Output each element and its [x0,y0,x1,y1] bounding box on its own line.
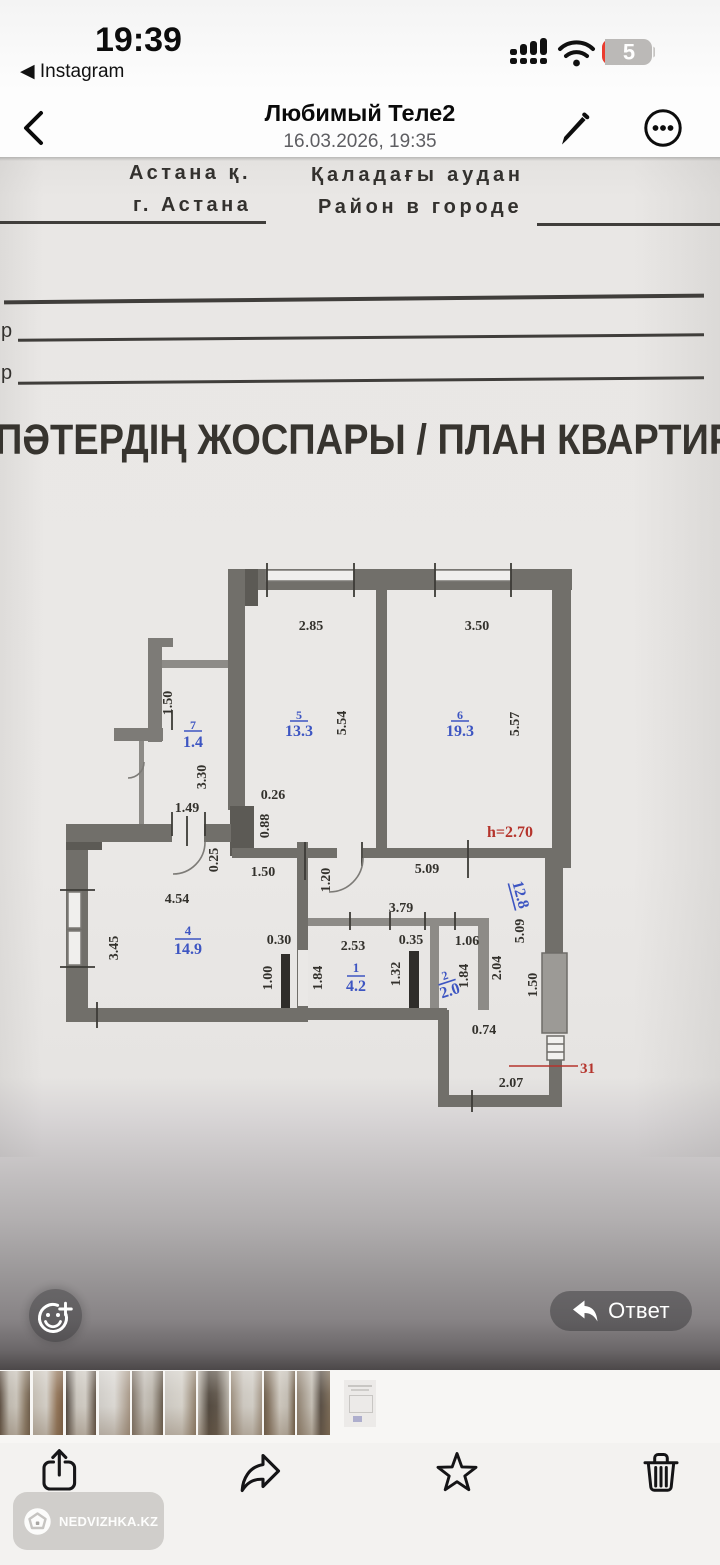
svg-text:2.04: 2.04 [490,956,505,981]
svg-text:14.9: 14.9 [174,941,202,958]
svg-text:2.07: 2.07 [499,1076,524,1091]
svg-text:h=2.70: h=2.70 [487,824,533,841]
svg-text:4: 4 [185,923,192,938]
svg-text:4.2: 4.2 [346,978,366,995]
svg-text:0.74: 0.74 [472,1023,497,1038]
svg-text:5.57: 5.57 [508,712,523,737]
svg-text:1.20: 1.20 [319,868,334,893]
svg-text:0.35: 0.35 [399,933,424,948]
svg-text:13.3: 13.3 [285,723,313,740]
svg-text:19.3: 19.3 [446,723,474,740]
svg-text:6: 6 [457,708,463,722]
svg-text:3.30: 3.30 [195,765,210,790]
svg-text:4.54: 4.54 [165,892,190,907]
svg-text:2.85: 2.85 [299,619,324,634]
svg-text:1.4: 1.4 [183,734,203,751]
svg-text:3.79: 3.79 [389,901,414,916]
svg-text:7: 7 [190,718,196,732]
svg-text:5.09: 5.09 [415,862,440,877]
svg-text:2.53: 2.53 [341,939,366,954]
svg-text:5.54: 5.54 [335,711,350,736]
svg-text:0.88: 0.88 [258,814,273,839]
svg-text:5: 5 [623,40,635,65]
svg-text:1.32: 1.32 [389,962,404,987]
svg-text:5: 5 [296,708,302,722]
svg-text:3.45: 3.45 [107,936,122,961]
svg-text:0.25: 0.25 [207,848,222,873]
svg-text:1.84: 1.84 [311,966,326,991]
svg-text:1: 1 [353,960,360,975]
svg-text:5.09: 5.09 [513,919,528,944]
svg-text:0.30: 0.30 [267,933,292,948]
svg-text:1.50: 1.50 [161,691,176,716]
svg-text:0.26: 0.26 [261,788,286,803]
svg-text:1.49: 1.49 [175,801,200,816]
svg-text:1.84: 1.84 [457,964,472,989]
svg-text:31: 31 [580,1061,595,1077]
svg-text:1.50: 1.50 [251,865,276,880]
svg-text:1.50: 1.50 [526,973,541,998]
svg-text:1.06: 1.06 [455,934,480,949]
svg-text:1.00: 1.00 [261,966,276,991]
svg-text:3.50: 3.50 [465,619,490,634]
